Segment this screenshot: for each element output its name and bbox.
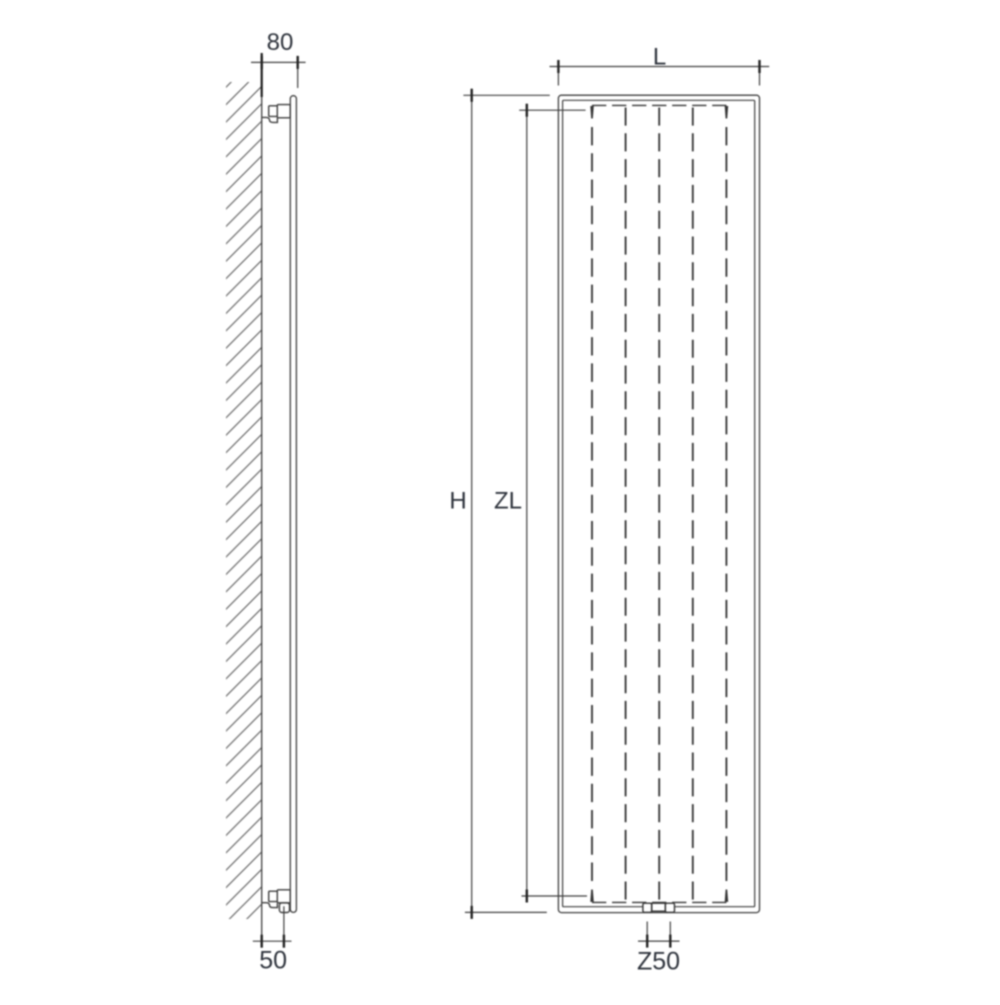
svg-text:80: 80 [267,29,294,56]
svg-text:L: L [653,44,666,71]
svg-text:H: H [449,488,466,515]
svg-text:Z50: Z50 [637,947,680,975]
svg-text:50: 50 [259,947,287,975]
svg-text:ZL: ZL [494,488,522,515]
